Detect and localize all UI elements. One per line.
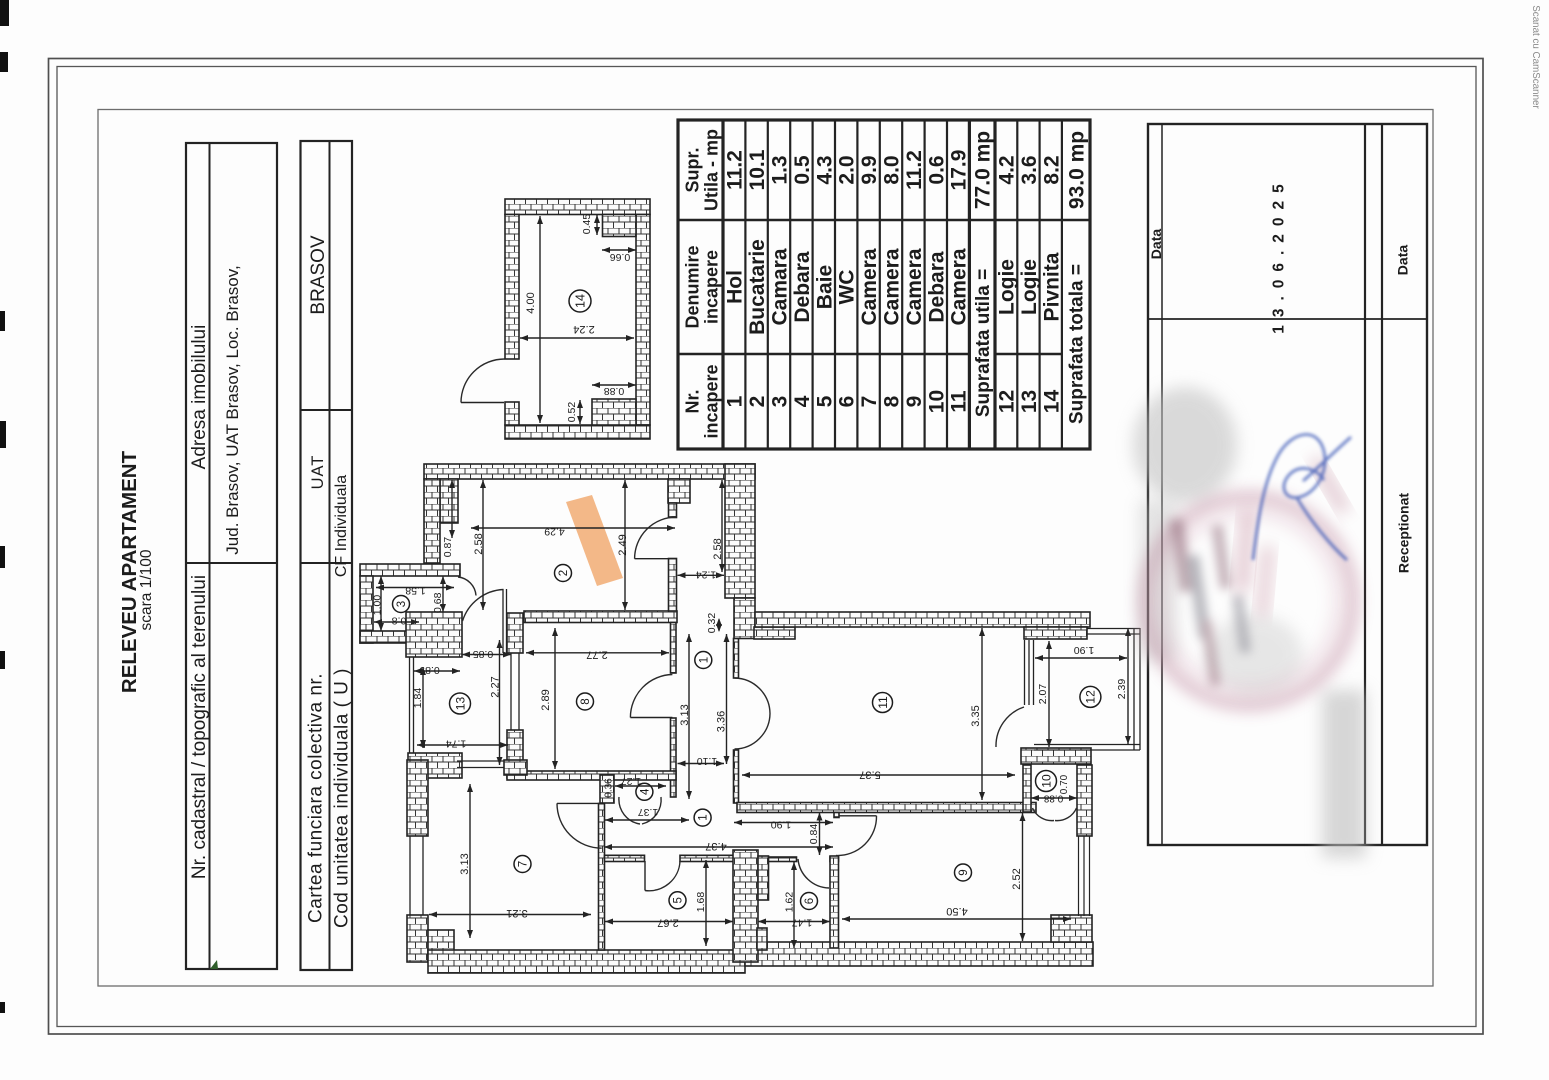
svg-text:0.87: 0.87 bbox=[442, 537, 454, 558]
svg-text:7: 7 bbox=[858, 396, 881, 408]
svg-text:Debara: Debara bbox=[925, 251, 948, 323]
svg-text:17.9: 17.9 bbox=[948, 150, 971, 191]
svg-text:1.00: 1.00 bbox=[371, 595, 383, 616]
svg-text:11.2: 11.2 bbox=[724, 150, 747, 190]
svg-text:Nr.: Nr. bbox=[682, 389, 702, 413]
svg-text:1.47: 1.47 bbox=[792, 917, 813, 929]
svg-text:1.58: 1.58 bbox=[405, 585, 426, 597]
svg-text:Jud. Brasov, UAT Brasov, Loc.: Jud. Brasov, UAT Brasov, Loc. Brasov, bbox=[223, 265, 242, 554]
svg-text:Data: Data bbox=[1395, 245, 1411, 276]
svg-text:3.6: 3.6 bbox=[1018, 155, 1041, 184]
svg-text:1.27: 1.27 bbox=[621, 775, 642, 787]
svg-text:2.52: 2.52 bbox=[1011, 868, 1023, 889]
svg-text:12: 12 bbox=[1084, 690, 1098, 704]
svg-text:Nr. cadastral / topografic al: Nr. cadastral / topografic al terenului bbox=[189, 575, 210, 879]
svg-text:Denumire: Denumire bbox=[682, 245, 702, 328]
svg-text:8.2: 8.2 bbox=[1040, 155, 1063, 184]
svg-text:3.35: 3.35 bbox=[970, 705, 982, 726]
svg-text:4: 4 bbox=[791, 395, 814, 407]
svg-text:9: 9 bbox=[903, 396, 926, 408]
svg-text:0.70: 0.70 bbox=[1059, 774, 1070, 794]
svg-text:incapere: incapere bbox=[701, 250, 721, 324]
svg-text:4.3: 4.3 bbox=[813, 155, 836, 184]
svg-text:0.45: 0.45 bbox=[581, 214, 593, 235]
svg-text:2.89: 2.89 bbox=[540, 689, 552, 710]
svg-text:2.77: 2.77 bbox=[586, 649, 607, 661]
svg-text:11.2: 11.2 bbox=[903, 150, 926, 190]
svg-text:Camera: Camera bbox=[858, 248, 881, 325]
svg-text:Debara: Debara bbox=[791, 251, 814, 323]
svg-text:BRASOV: BRASOV bbox=[308, 235, 329, 315]
svg-text:1.37: 1.37 bbox=[638, 806, 659, 818]
svg-text:0.84: 0.84 bbox=[808, 824, 820, 845]
svg-text:77.0 mp: 77.0 mp bbox=[972, 131, 995, 209]
svg-text:Supr.: Supr. bbox=[682, 147, 702, 192]
svg-text:8: 8 bbox=[881, 395, 904, 407]
svg-text:9.9: 9.9 bbox=[858, 155, 881, 184]
svg-text:Cod unitatea individuala ( U ): Cod unitatea individuala ( U ) bbox=[331, 668, 352, 928]
svg-text:2.07: 2.07 bbox=[1037, 684, 1049, 705]
svg-text:6: 6 bbox=[836, 396, 859, 408]
svg-text:2.24: 2.24 bbox=[573, 323, 594, 335]
svg-text:2: 2 bbox=[746, 396, 769, 408]
svg-text:Camara: Camara bbox=[769, 248, 792, 325]
svg-text:93.0 mp: 93.0 mp bbox=[1065, 131, 1088, 209]
svg-text:0.32: 0.32 bbox=[706, 613, 718, 634]
svg-text:2: 2 bbox=[558, 570, 570, 576]
svg-text:1.24: 1.24 bbox=[696, 569, 717, 581]
svg-text:Utila - mp: Utila - mp bbox=[701, 129, 721, 211]
svg-text:Suprafata utila =: Suprafata utila = bbox=[973, 269, 994, 417]
svg-text:Logie: Logie bbox=[1018, 259, 1041, 315]
svg-text:Camera: Camera bbox=[948, 248, 971, 325]
svg-text:4.00: 4.00 bbox=[525, 292, 537, 313]
svg-text:8: 8 bbox=[580, 698, 592, 704]
svg-text:1.62: 1.62 bbox=[783, 892, 795, 913]
svg-text:1.90: 1.90 bbox=[771, 819, 792, 831]
svg-text:4: 4 bbox=[640, 788, 652, 795]
svg-text:11: 11 bbox=[948, 390, 971, 413]
svg-text:Scanat cu CamScanner: Scanat cu CamScanner bbox=[1530, 5, 1541, 109]
svg-text:5: 5 bbox=[673, 897, 685, 903]
svg-text:10.1: 10.1 bbox=[746, 149, 769, 190]
svg-text:1: 1 bbox=[698, 814, 710, 820]
svg-text:2.58: 2.58 bbox=[712, 538, 724, 559]
svg-text:13.06.2025: 13.06.2025 bbox=[1271, 176, 1288, 334]
svg-text:12: 12 bbox=[996, 390, 1019, 413]
svg-text:5.37: 5.37 bbox=[859, 769, 880, 781]
svg-text:1.84: 1.84 bbox=[412, 688, 424, 709]
svg-text:Pivnita: Pivnita bbox=[1040, 252, 1063, 321]
svg-text:0.5: 0.5 bbox=[791, 155, 814, 185]
svg-text:Data: Data bbox=[1148, 229, 1164, 260]
svg-text:Adresa imobilului: Adresa imobilului bbox=[189, 325, 210, 470]
svg-text:0.89: 0.89 bbox=[419, 664, 440, 676]
svg-text:0.66: 0.66 bbox=[610, 251, 631, 263]
svg-text:3: 3 bbox=[769, 396, 792, 408]
svg-text:1.74: 1.74 bbox=[446, 738, 467, 750]
svg-text:0.8: 0.8 bbox=[392, 615, 407, 627]
svg-text:scara 1/100: scara 1/100 bbox=[138, 549, 155, 630]
svg-text:1: 1 bbox=[724, 395, 747, 407]
svg-text:2.39: 2.39 bbox=[1116, 679, 1128, 700]
svg-text:10: 10 bbox=[1039, 774, 1053, 788]
svg-text:3.36: 3.36 bbox=[715, 711, 727, 732]
svg-text:Camera: Camera bbox=[903, 248, 926, 325]
svg-text:CF Individuala: CF Individuala bbox=[333, 475, 350, 577]
svg-text:2.67: 2.67 bbox=[657, 917, 678, 929]
svg-text:10: 10 bbox=[925, 390, 948, 413]
svg-text:2.27: 2.27 bbox=[489, 676, 501, 697]
svg-text:3: 3 bbox=[396, 601, 408, 607]
svg-text:1.90: 1.90 bbox=[1074, 644, 1095, 656]
svg-text:1.68: 1.68 bbox=[695, 892, 707, 913]
svg-text:4.29: 4.29 bbox=[544, 526, 565, 538]
svg-text:1: 1 bbox=[698, 657, 710, 663]
svg-text:Bucatarie: Bucatarie bbox=[746, 239, 769, 335]
svg-text:0.6: 0.6 bbox=[925, 155, 948, 184]
svg-text:WC: WC bbox=[836, 270, 859, 305]
svg-text:3.13: 3.13 bbox=[459, 853, 471, 874]
svg-text:incapere: incapere bbox=[701, 364, 721, 438]
svg-text:8.0: 8.0 bbox=[881, 155, 904, 184]
svg-text:0.68: 0.68 bbox=[432, 592, 444, 613]
svg-text:1.10: 1.10 bbox=[697, 755, 718, 767]
svg-text:1.3: 1.3 bbox=[769, 155, 792, 184]
svg-text:9: 9 bbox=[958, 869, 970, 875]
svg-text:2.58: 2.58 bbox=[473, 533, 485, 554]
svg-text:4.50: 4.50 bbox=[946, 905, 967, 917]
svg-text:3.13: 3.13 bbox=[679, 704, 691, 725]
svg-text:0.36: 0.36 bbox=[604, 778, 615, 798]
svg-text:UAT: UAT bbox=[309, 455, 327, 490]
svg-text:4.2: 4.2 bbox=[996, 155, 1019, 184]
svg-text:13: 13 bbox=[1018, 390, 1041, 413]
svg-text:0.88: 0.88 bbox=[604, 385, 625, 397]
svg-text:Receptionat: Receptionat bbox=[1396, 493, 1412, 573]
svg-text:0.52: 0.52 bbox=[566, 402, 578, 423]
svg-text:2.0: 2.0 bbox=[836, 155, 859, 184]
svg-text:Camera: Camera bbox=[881, 248, 904, 325]
svg-text:3.21: 3.21 bbox=[506, 907, 527, 919]
svg-text:Suprafata totala =: Suprafata totala = bbox=[1067, 264, 1088, 424]
svg-text:0.85: 0.85 bbox=[473, 648, 494, 660]
svg-text:Logie: Logie bbox=[996, 259, 1019, 315]
svg-text:Hol: Hol bbox=[724, 270, 747, 304]
svg-text:14: 14 bbox=[574, 294, 588, 308]
svg-text:2.49: 2.49 bbox=[617, 534, 629, 555]
svg-text:7: 7 bbox=[518, 861, 530, 867]
svg-text:Baie: Baie bbox=[813, 265, 836, 309]
svg-text:Cartea funciara colectiva nr.: Cartea funciara colectiva nr. bbox=[305, 673, 326, 923]
svg-text:14: 14 bbox=[1040, 390, 1063, 414]
svg-text:6: 6 bbox=[804, 898, 816, 904]
svg-text:4.37: 4.37 bbox=[705, 840, 726, 852]
svg-text:5: 5 bbox=[813, 395, 836, 407]
svg-text:11: 11 bbox=[876, 696, 890, 709]
svg-text:13: 13 bbox=[453, 697, 467, 711]
